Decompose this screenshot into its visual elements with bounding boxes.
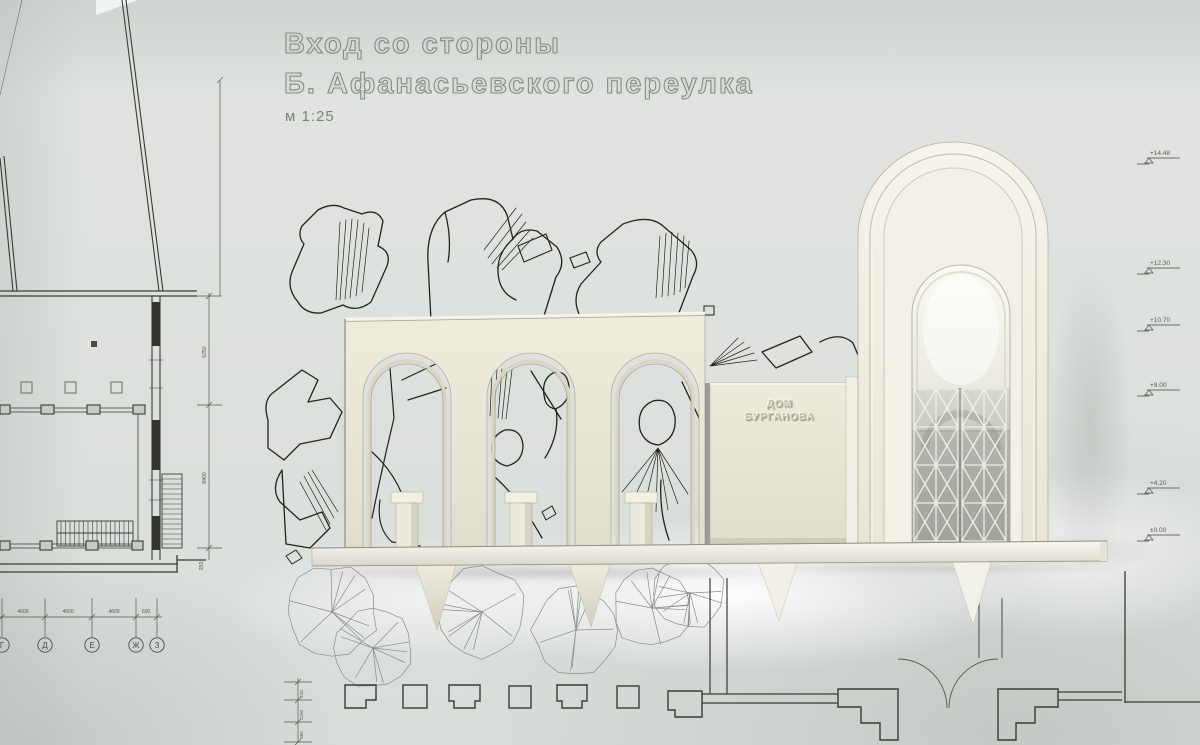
sheet-corner (96, 0, 138, 15)
axis-bubble: Ж (129, 638, 143, 652)
dimension-stack (284, 678, 312, 745)
elevation-label: +9.00 (1150, 382, 1167, 389)
elevation-mark: +14.48 (1137, 150, 1180, 164)
title-line-2: Б. Афанасьевского переулка (284, 64, 754, 104)
title-line-1: Вход со стороны (284, 24, 754, 64)
plan-tree (531, 586, 618, 674)
scale-label: м 1:25 (285, 108, 335, 125)
dimension-labels: 460046004600600625084002504201250350 (17, 346, 304, 739)
ink-blob (576, 219, 697, 328)
site-plan-left (0, 0, 312, 745)
axis-label: Г (0, 641, 5, 650)
outer-wall (0, 555, 206, 572)
dimension-text: 600 (142, 609, 151, 615)
elevation-label: +4.20 (1150, 480, 1167, 487)
elevation-label: ±0.00 (1150, 527, 1167, 534)
photo-architectural-model-on-drawing: Вход со стороны Б. Афанасьевского переул… (0, 0, 1200, 745)
street-diagonal-2 (0, 156, 17, 291)
plan-mark (91, 341, 97, 347)
column-section (509, 686, 531, 708)
dimension-text: 420 (299, 690, 304, 698)
elevation-mark: +10.70 (1137, 317, 1180, 331)
elevation-mark: +9.00 (1137, 382, 1180, 396)
ink-blob (266, 370, 342, 460)
plan-tree (334, 608, 411, 686)
ink-blob (290, 205, 388, 313)
axis-bubble: Д (38, 638, 52, 652)
axis-label: Е (89, 641, 94, 650)
model-plaque: ДОМ БУРГАНОВА (740, 398, 820, 424)
pier-section (345, 685, 376, 708)
model (295, 142, 1160, 630)
plaque-line-2: БУРГАНОВА (740, 411, 820, 424)
pier-section (449, 685, 480, 708)
column-section (403, 685, 427, 708)
dimension-text: 6250 (202, 346, 208, 358)
column-section (617, 686, 639, 708)
street-diagonal (122, 0, 163, 291)
elevation-mark: +4.20 (1137, 480, 1180, 494)
elevation-mark: ±0.00 (1137, 527, 1180, 541)
elevation-label: +10.70 (1150, 317, 1170, 324)
drawing-title: Вход со стороны Б. Афанасьевского переул… (284, 24, 754, 104)
ink-blob (428, 199, 562, 330)
bracket (415, 561, 457, 630)
drawing-and-model-graphics: +14.48+12.30+10.70+9.00+4.20±0.00 ГДЕЖЗ … (0, 0, 1200, 745)
dimension-text: 1250 (299, 709, 304, 720)
dimension-text: 4600 (62, 609, 73, 615)
side-panel (846, 377, 858, 550)
pier-section (557, 685, 587, 708)
elevation-label: +14.48 (1150, 150, 1170, 157)
axis-label: Д (42, 641, 48, 650)
street-line (0, 0, 22, 95)
plan-column (65, 382, 76, 393)
wall-plan-right (668, 571, 1200, 740)
bracket (952, 559, 992, 625)
street-edge (0, 291, 197, 296)
elevation-mark: +12.30 (1137, 260, 1180, 274)
plaque-line-1: ДОМ (740, 398, 820, 411)
dimension-text: 4600 (108, 609, 119, 615)
dimension-line-vertical (197, 77, 223, 560)
axis-bubble: Г (0, 638, 9, 652)
shelf-shadow (295, 564, 795, 582)
plan-column (21, 382, 32, 393)
bracket (569, 561, 611, 627)
axis-bubbles: ГДЕЖЗ (0, 638, 164, 652)
dimension-text: 250 (199, 562, 205, 571)
dimension-text: 8400 (202, 472, 208, 484)
axis-label: Ж (132, 641, 140, 650)
axis-bubble: Е (85, 638, 99, 652)
dimension-text: 350 (299, 731, 304, 739)
axis-label: З (155, 641, 160, 650)
plan-column (111, 382, 122, 393)
arch-cast-shadow (1048, 260, 1132, 580)
elevation-marks: +14.48+12.30+10.70+9.00+4.20±0.00 (1137, 150, 1180, 541)
stairs-vertical (162, 474, 182, 548)
pier-wall (0, 408, 145, 412)
dimension-text: 4600 (17, 609, 28, 615)
plan-tree (288, 567, 376, 656)
bracket (758, 560, 798, 621)
axis-dimension-line (0, 598, 162, 637)
elevation-label: +12.30 (1150, 260, 1170, 267)
axis-bubble: З (150, 638, 164, 652)
